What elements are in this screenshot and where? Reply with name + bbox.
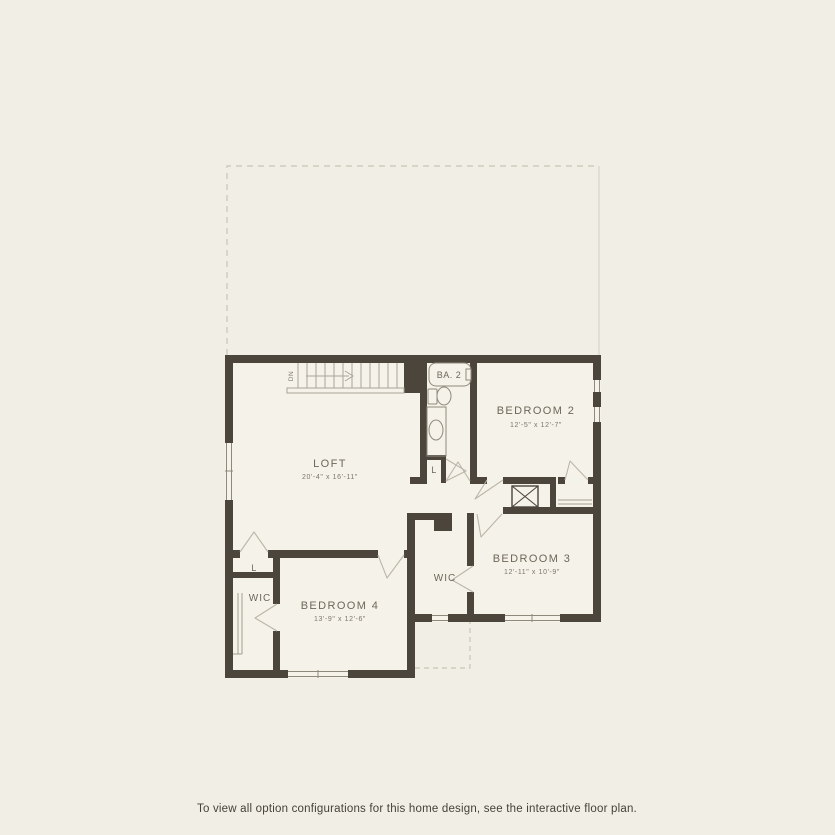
window-bedroom2-right-lower [593, 407, 601, 422]
window-bedroom4-bottom [288, 670, 348, 678]
bathtub-faucet [466, 369, 471, 380]
wall-bedroom2-bottom-b [503, 477, 556, 484]
window-loft-left [225, 443, 233, 500]
wall-loft-bottom-c [404, 550, 415, 558]
wall-bath-left [420, 393, 427, 483]
wall-outer-left [225, 355, 233, 678]
floor-plan-page: DN LOFT 20'-4" x 16'-11" [0, 0, 835, 835]
wall-bath-linen-right [441, 460, 446, 483]
room-label-bedroom3: BEDROOM 3 12'-11" x 10'-9" [493, 553, 572, 576]
wall-wic-center-right-upper [467, 513, 474, 566]
stair-stringer [287, 388, 404, 393]
bedroom3-dims: 12'-11" x 10'-9" [504, 569, 560, 576]
bath2-label: BA. 2 [437, 370, 462, 380]
wall-wic-left-lower [273, 631, 280, 678]
linen-bath-label: L [431, 465, 437, 475]
wall-stair-block [404, 357, 427, 393]
bedroom4-dims: 13'-9" x 12'-6" [314, 616, 366, 623]
linen-left-label: L [251, 563, 257, 573]
attic-access-box [512, 486, 538, 507]
wall-bedroom2-bottom-a [470, 477, 487, 484]
window-wic-bottom [432, 614, 448, 622]
stairs-dn-label: DN [288, 371, 295, 381]
wall-loft-bottom-b [268, 550, 378, 558]
wall-bedroom4-right [407, 513, 415, 678]
wall-wic-left-upper [273, 557, 280, 604]
bedroom2-dims: 12'-5" x 12'-7" [510, 422, 562, 429]
optional-area-outline-bottom [415, 622, 470, 668]
optional-area-outline-top [227, 166, 599, 355]
wall-bedroom2-bottom-c [558, 477, 565, 484]
wall-wic-center-right-lower [467, 592, 474, 614]
wall-outer-right [593, 355, 601, 622]
bedroom2-name: BEDROOM 2 [497, 405, 576, 417]
wall-loft-bottom-a [233, 550, 240, 558]
loft-dims: 20'-4" x 16'-11" [302, 474, 358, 481]
wall-bedroom2-bottom-d [588, 477, 601, 484]
bedroom4-name: BEDROOM 4 [301, 600, 380, 612]
window-bedroom3-bottom [505, 614, 560, 622]
wic-center-label: WIC [434, 573, 456, 584]
wic-left-label: WIC [249, 593, 271, 604]
caption: To view all option configurations for th… [197, 803, 637, 815]
wall-wic-center-block [434, 513, 452, 531]
bedroom3-name: BEDROOM 3 [493, 553, 572, 565]
window-bedroom2-right-upper [593, 380, 601, 392]
loft-name: LOFT [313, 458, 347, 470]
wall-hall-stub [410, 477, 427, 484]
wall-closet-divider [550, 477, 556, 514]
floor-plan-drawing: DN LOFT 20'-4" x 16'-11" [0, 0, 835, 835]
